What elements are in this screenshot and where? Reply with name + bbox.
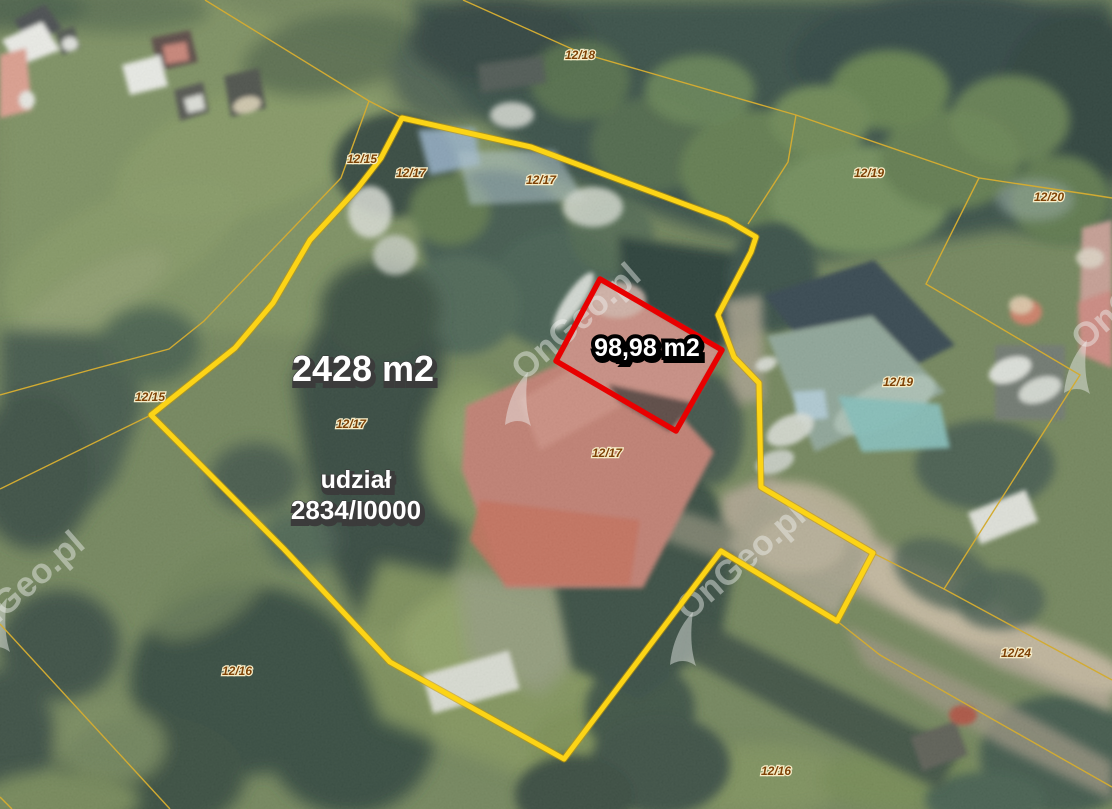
svg-text:12/16: 12/16 bbox=[222, 664, 252, 678]
svg-text:2834/I0000: 2834/I0000 bbox=[291, 495, 421, 525]
svg-text:98,98 m2: 98,98 m2 bbox=[594, 334, 700, 362]
svg-text:12/15: 12/15 bbox=[135, 390, 165, 404]
svg-text:udział: udział bbox=[321, 466, 392, 494]
svg-text:12/17: 12/17 bbox=[526, 173, 557, 187]
svg-text:12/20: 12/20 bbox=[1034, 190, 1064, 204]
svg-text:12/17: 12/17 bbox=[336, 417, 367, 431]
svg-text:12/15: 12/15 bbox=[347, 152, 377, 166]
svg-text:12/17: 12/17 bbox=[396, 166, 427, 180]
svg-text:12/19: 12/19 bbox=[854, 166, 884, 180]
svg-text:2428 m2: 2428 m2 bbox=[292, 348, 434, 389]
svg-text:12/24: 12/24 bbox=[1001, 646, 1031, 660]
svg-text:12/17: 12/17 bbox=[592, 446, 623, 460]
svg-text:12/19: 12/19 bbox=[883, 375, 913, 389]
svg-text:12/18: 12/18 bbox=[565, 48, 595, 62]
svg-text:12/16: 12/16 bbox=[761, 764, 791, 778]
